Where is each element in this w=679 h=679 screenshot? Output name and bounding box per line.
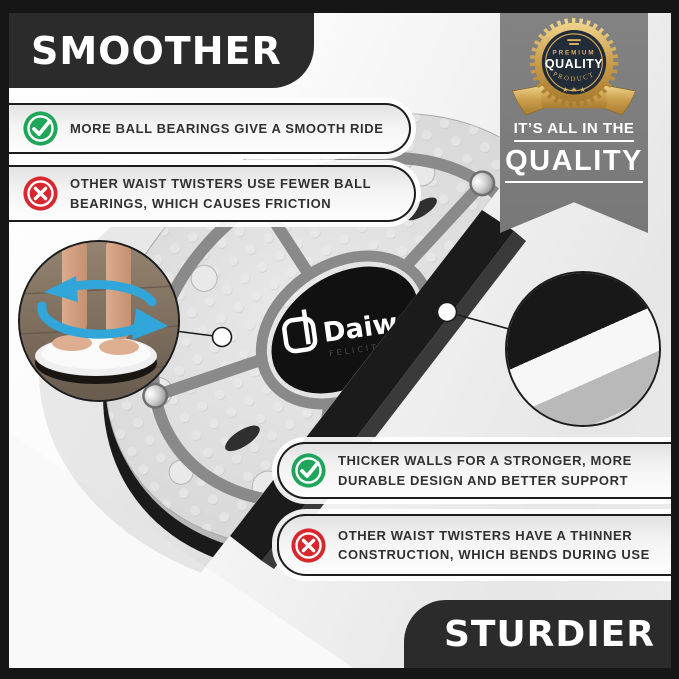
inset-wall-closeup <box>505 271 661 427</box>
callout-line: MORE BALL BEARINGS GIVE A SMOOTH RIDE <box>70 119 384 139</box>
smoother-banner: SMOOTHER <box>9 13 314 88</box>
callout-line: CONSTRUCTION, WHICH BENDS DURING USE <box>338 545 650 565</box>
badge-premium-text: PREMIUM <box>553 50 596 57</box>
callout-line: OTHER WAIST TWISTERS HAVE A THINNER <box>338 526 650 546</box>
callout-smooth-pro: MORE BALL BEARINGS GIVE A SMOOTH RIDE <box>9 103 411 154</box>
quality-ribbon: PREMIUM QUALITY PRODUCT ★ ★ ★ IT’S ALL I… <box>500 13 648 233</box>
cross-icon <box>290 527 327 564</box>
badge-stars: ★ ★ ★ <box>562 85 586 94</box>
callout-line: THICKER WALLS FOR A STRONGER, MORE <box>338 451 632 471</box>
scene-canvas: Daiwa FELICITY <box>9 13 671 668</box>
ribbon-tagline-line2: QUALITY <box>505 145 643 183</box>
infographic-frame: Daiwa FELICITY <box>0 0 679 679</box>
callout-sturdy-pro: THICKER WALLS FOR A STRONGER, MORE DURAB… <box>277 442 671 499</box>
callout-line: OTHER WAIST TWISTERS USE FEWER BALL <box>70 174 371 194</box>
cross-icon <box>22 175 59 212</box>
callout-line: DURABLE DESIGN AND BETTER SUPPORT <box>338 471 632 491</box>
premium-quality-badge-icon: PREMIUM QUALITY PRODUCT ★ ★ ★ <box>510 18 638 118</box>
callout-smooth-con: OTHER WAIST TWISTERS USE FEWER BALL BEAR… <box>9 165 416 222</box>
inset-feet-rotation <box>18 240 180 402</box>
check-icon <box>290 452 327 489</box>
ribbon-tagline-line1: IT’S ALL IN THE <box>514 120 635 142</box>
badge-quality-text: QUALITY <box>545 57 603 71</box>
callout-line: BEARINGS, WHICH CAUSES FRICTION <box>70 194 371 214</box>
callout-sturdy-con: OTHER WAIST TWISTERS HAVE A THINNER CONS… <box>277 514 671 576</box>
check-icon <box>22 110 59 147</box>
sturdier-banner: STURDIER <box>404 600 671 668</box>
